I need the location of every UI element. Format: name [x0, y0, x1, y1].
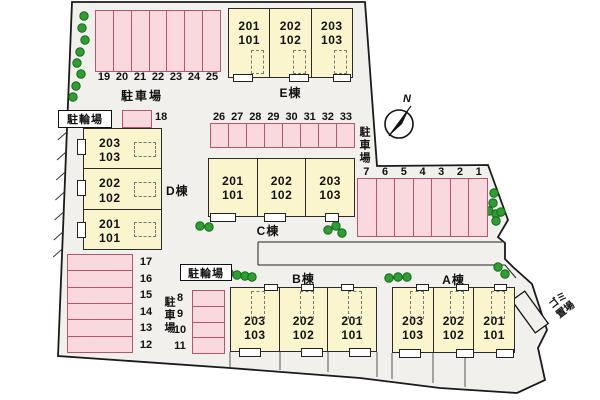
parking-space-number: 30: [283, 111, 301, 123]
building-d-label: D棟: [166, 182, 189, 199]
parking-lot-right: [357, 178, 488, 237]
entrance-porch: [301, 348, 323, 357]
entrance-notch: [264, 284, 278, 291]
unit-d-202: 202102: [84, 168, 161, 208]
parking-space-number: 6: [376, 166, 395, 178]
parking-space: [450, 179, 469, 236]
bicycle-parking-label-left: 駐輪場: [58, 110, 112, 128]
parking-space-number: 10: [170, 322, 190, 338]
parking-space: [264, 124, 282, 147]
unit-number: 201: [222, 174, 244, 188]
parking-space-number: 33: [337, 111, 355, 123]
unit-number: 202: [99, 176, 121, 190]
parking-space: [193, 291, 224, 306]
parking-space-number: 11: [170, 338, 190, 354]
parking-space-number: 14: [135, 304, 157, 321]
parking-space-number: 20: [113, 71, 131, 83]
parking-space: [149, 11, 167, 71]
unit-c-201: 201101: [209, 159, 257, 216]
stair-symbol: [334, 50, 347, 74]
unit-a-202: 202102: [433, 288, 474, 352]
parking-lot-label-vertical: 駐車場: [356, 126, 372, 170]
parking-space-number: 5: [394, 166, 413, 178]
parking-space-number: 18: [155, 111, 167, 123]
unit-b-203: 203103: [231, 288, 279, 351]
parking-numbers-bottom-left: 17 16 15 14 13 12: [135, 254, 157, 353]
parking-space: [413, 179, 432, 236]
parking-space-number: 3: [432, 166, 451, 178]
stair-symbol: [491, 291, 505, 319]
entrance-porch: [77, 139, 86, 155]
building-e-label: E棟: [228, 84, 353, 101]
parking-space: [68, 319, 132, 335]
unit-number: 203: [321, 19, 343, 33]
unit-e-201: 201101: [229, 9, 269, 77]
parking-space-number: 25: [203, 71, 221, 83]
unit-number: 201: [99, 217, 121, 231]
parking-numbers-top-left: 19 20 21 22 23 24 25: [95, 71, 221, 83]
parking-space: [394, 179, 413, 236]
parking-numbers-middle: 26 27 28 29 30 31 32 33: [210, 111, 355, 123]
unit-number: 201: [238, 19, 260, 33]
parking-space: [300, 124, 318, 147]
entrance-notch: [494, 284, 507, 291]
stair-symbol: [251, 50, 264, 74]
unit-number: 102: [443, 328, 465, 342]
parking-space-number: 12: [135, 337, 157, 354]
parking-space-number: 8: [170, 290, 190, 306]
parking-space-18: [122, 110, 152, 128]
parking-space: [131, 11, 149, 71]
parking-space-number: 1: [469, 166, 488, 178]
unit-b-202: 202102: [279, 288, 328, 351]
stair-symbol: [410, 291, 424, 319]
parking-space: [193, 306, 224, 322]
parking-space: [166, 11, 184, 71]
parking-space: [68, 255, 132, 270]
parking-space: [358, 179, 376, 236]
entrance-porch: [289, 74, 309, 82]
parking-space-number: 27: [228, 111, 246, 123]
unit-b-201: 201101: [327, 288, 376, 351]
unit-number: 103: [99, 150, 121, 164]
parking-space-number: 17: [135, 254, 157, 271]
entrance-porch: [77, 180, 86, 196]
unit-number: 202: [271, 174, 293, 188]
bicycle-space-numbers: 8 9 10 11: [170, 290, 190, 354]
unit-d-201: 201101: [84, 209, 161, 249]
entrance-porch: [239, 348, 261, 357]
north-label: N: [403, 93, 411, 105]
stair-symbol: [251, 291, 265, 319]
parking-space: [211, 124, 228, 147]
parking-space: [431, 179, 450, 236]
unit-number: 103: [319, 188, 341, 202]
parking-space: [184, 11, 202, 71]
unit-number: 202: [280, 19, 302, 33]
building-d: 203103 202102 201101: [83, 128, 162, 250]
parking-space-number: 15: [135, 287, 157, 304]
unit-a-203: 203103: [393, 288, 433, 352]
parking-space-number: 28: [246, 111, 264, 123]
entrance-porch: [210, 213, 236, 222]
entrance-notch: [416, 284, 429, 291]
parking-lot-top-left: [95, 10, 221, 72]
stair-symbol: [348, 291, 362, 319]
parking-space-number: 29: [264, 111, 282, 123]
parking-space-number: 21: [131, 71, 149, 83]
parking-space-number: 26: [210, 111, 228, 123]
entrance-porch: [264, 213, 286, 222]
unit-number: 101: [483, 328, 505, 342]
parking-space: [246, 124, 264, 147]
parking-space: [282, 124, 300, 147]
unit-number: 102: [99, 191, 121, 205]
stair-symbol: [134, 142, 156, 157]
unit-c-202: 202102: [257, 159, 306, 216]
parking-space-number: 7: [357, 166, 376, 178]
unit-number: 101: [341, 328, 363, 342]
entrance-porch: [456, 349, 474, 358]
parking-space-number: 22: [149, 71, 167, 83]
parking-space-number: 32: [319, 111, 337, 123]
parking-space-number: 23: [167, 71, 185, 83]
parking-lot-label: 駐車場: [107, 87, 177, 104]
parking-space-number: 31: [301, 111, 319, 123]
stair-symbol: [293, 50, 306, 74]
entrance-porch: [333, 74, 351, 82]
building-c-label: C棟: [208, 222, 328, 239]
parking-space: [68, 270, 132, 286]
stair-symbol: [450, 291, 464, 319]
unit-number: 102: [271, 188, 293, 202]
unit-number: 101: [222, 188, 244, 202]
unit-c-203: 203103: [305, 159, 354, 216]
unit-number: 203: [99, 136, 121, 150]
parking-space: [318, 124, 336, 147]
parking-space: [228, 124, 246, 147]
parking-space: [96, 11, 113, 71]
stair-symbol: [134, 222, 156, 237]
unit-number: 102: [293, 328, 315, 342]
stair-symbol: [134, 182, 156, 197]
entrance-porch: [349, 348, 371, 357]
unit-number: 103: [321, 33, 343, 47]
unit-number: 101: [99, 231, 121, 245]
entrance-porch: [399, 349, 421, 358]
entrance-notch: [341, 284, 354, 291]
parking-space: [68, 287, 132, 303]
bicycle-parking-spaces: [192, 290, 225, 354]
entrance-porch: [77, 222, 86, 238]
parking-space: [113, 11, 131, 71]
unit-number: 102: [280, 33, 302, 47]
parking-space: [202, 11, 220, 71]
parking-space: [68, 303, 132, 319]
building-a: 203103 202102 201101: [392, 287, 515, 353]
parking-lot-middle: [210, 123, 355, 148]
parking-space-number: 19: [95, 71, 113, 83]
parking-space-number: 9: [170, 306, 190, 322]
parking-space-number: 13: [135, 320, 157, 337]
entrance-porch: [496, 349, 514, 358]
parking-space-number: 16: [135, 271, 157, 288]
unit-number: 203: [319, 174, 341, 188]
parking-space: [336, 124, 354, 147]
stair-symbol: [300, 291, 314, 319]
parking-space: [193, 337, 224, 353]
building-b: 203103 202102 201101: [230, 287, 377, 352]
unit-e-202: 202102: [269, 9, 310, 77]
unit-d-203: 203103: [84, 129, 161, 168]
bicycle-parking-label-bottom: 駐輪場: [180, 264, 232, 281]
parking-space: [68, 336, 132, 352]
unit-number: 101: [238, 33, 260, 47]
entrance-notch: [301, 284, 314, 291]
parking-lot-bottom-left: [67, 254, 133, 353]
unit-number: 103: [244, 328, 266, 342]
parking-space: [376, 179, 395, 236]
site-plan: 19 20 21 22 23 24 25 駐車場 駐輪場 18 26 27 28…: [0, 0, 600, 400]
parking-space-number: 2: [451, 166, 470, 178]
parking-space-number: 4: [413, 166, 432, 178]
parking-space: [468, 179, 487, 236]
unit-a-201: 201101: [473, 288, 514, 352]
unit-e-203: 203103: [311, 9, 352, 77]
parking-space: [193, 322, 224, 338]
parking-numbers-right: 7 6 5 4 3 2 1: [357, 166, 488, 178]
entrance-notch: [456, 284, 469, 291]
parking-space-number: 24: [185, 71, 203, 83]
building-c: 201101 202102 203103: [208, 158, 355, 217]
building-e: 201101 202102 203103: [228, 8, 353, 78]
entrance-porch: [325, 213, 339, 222]
entrance-porch: [233, 74, 253, 82]
compass-icon: [385, 106, 413, 138]
unit-number: 103: [402, 328, 424, 342]
